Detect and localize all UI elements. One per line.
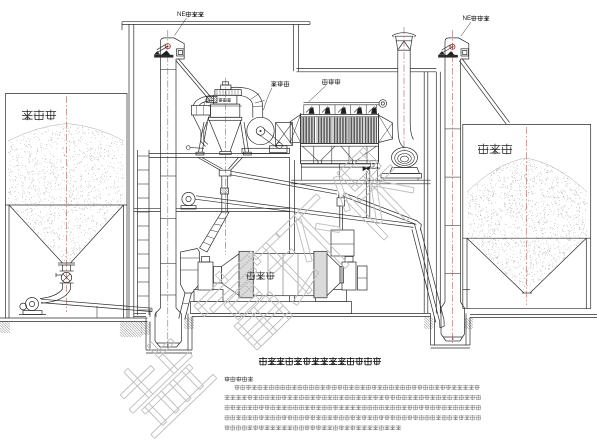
svg-text:NE: NE bbox=[177, 11, 186, 18]
svg-text:NE: NE bbox=[463, 15, 472, 22]
